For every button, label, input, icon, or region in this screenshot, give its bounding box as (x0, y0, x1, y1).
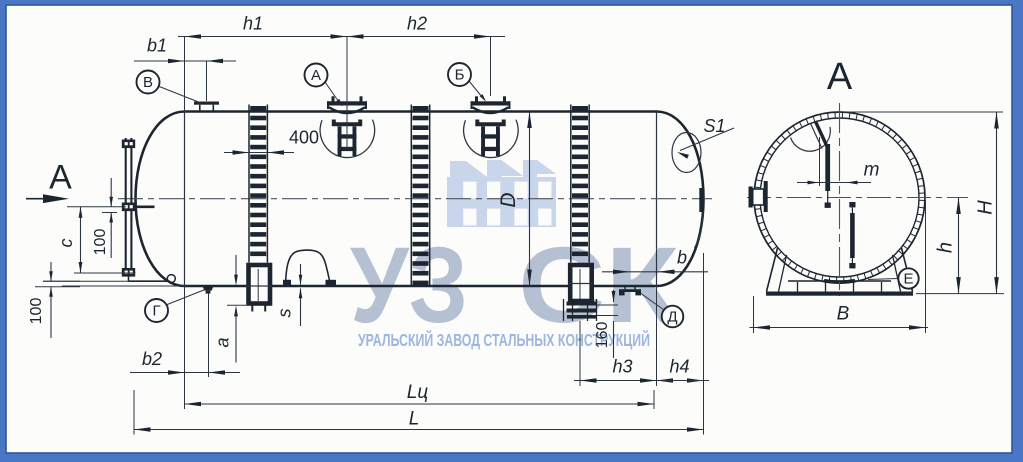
svg-text:B: B (837, 304, 850, 325)
svg-text:b2: b2 (142, 349, 162, 369)
svg-text:Е: Е (903, 271, 913, 288)
svg-text:h4: h4 (669, 357, 689, 377)
svg-text:h2: h2 (407, 14, 427, 34)
svg-text:Г: Г (152, 303, 160, 320)
svg-text:m: m (864, 160, 880, 181)
svg-text:100: 100 (28, 298, 45, 325)
svg-text:S1: S1 (703, 116, 725, 136)
svg-text:Д: Д (667, 309, 677, 326)
svg-text:s: s (275, 309, 295, 318)
svg-text:А: А (311, 67, 321, 84)
svg-text:D: D (497, 192, 520, 207)
svg-text:c: c (56, 239, 76, 248)
svg-text:h: h (935, 242, 957, 253)
svg-text:УЗ: УЗ (350, 224, 468, 345)
svg-text:L: L (409, 409, 420, 430)
svg-text:А: А (49, 159, 72, 197)
svg-text:h1: h1 (243, 14, 263, 34)
svg-text:А: А (827, 56, 853, 98)
svg-text:H: H (975, 200, 997, 215)
svg-text:a: a (213, 337, 233, 347)
svg-text:160: 160 (594, 322, 611, 349)
svg-text:Lц: Lц (407, 382, 429, 403)
svg-text:В: В (143, 74, 153, 91)
svg-text:b1: b1 (147, 36, 167, 56)
svg-text:h3: h3 (612, 357, 632, 377)
svg-text:b: b (677, 248, 687, 268)
svg-text:Б: Б (455, 67, 465, 84)
svg-text:100: 100 (92, 229, 109, 256)
svg-text:400: 400 (289, 128, 319, 148)
